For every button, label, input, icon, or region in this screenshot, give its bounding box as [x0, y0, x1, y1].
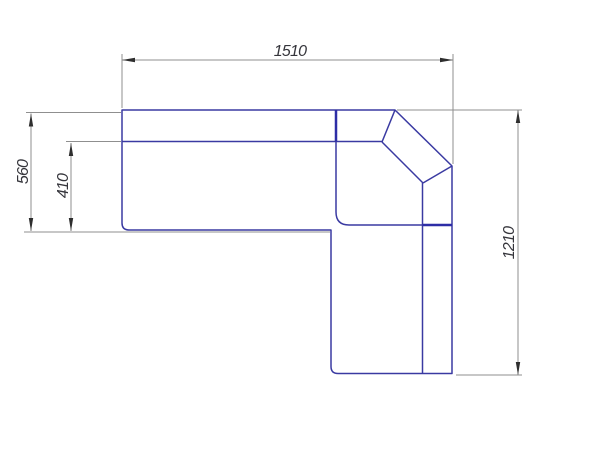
sofa-dimension-drawing: 15105604101210 [0, 0, 600, 450]
dimension-right-arm-length: 1210 [397, 110, 522, 375]
arrowhead-left-overall-width [122, 58, 135, 62]
dimension-overall-width: 1510 [122, 43, 453, 164]
dimension-annotations-group: 15105604101210 [15, 43, 522, 375]
arrowhead-right-overall-width [440, 58, 453, 62]
arrowhead-up-overall-depth [29, 114, 33, 127]
dimension-label-seat-depth: 410 [55, 173, 72, 198]
dimension-label-overall-width: 1510 [274, 43, 307, 60]
arrowhead-down-overall-depth [29, 218, 33, 231]
dimension-label-right-arm-length: 1210 [501, 226, 518, 259]
dimension-label-overall-depth: 560 [15, 159, 32, 184]
arrowhead-up-right-arm-length [516, 110, 520, 123]
corner-bevel-inner-left [382, 110, 395, 142]
sofa-outline-group [122, 110, 452, 374]
drawing-canvas: 15105604101210 [0, 0, 600, 450]
dimension-seat-depth: 410 [24, 142, 330, 233]
corner-backrest-bottom [382, 142, 423, 183]
arrowhead-up-seat-depth [69, 143, 73, 156]
corner-seat-boundary [336, 110, 452, 225]
arrowhead-down-seat-depth [69, 218, 73, 231]
corner-backrest-right [423, 166, 452, 183]
arrowhead-down-right-arm-length [516, 362, 520, 375]
sofa-outer-outline [122, 110, 452, 374]
dimension-overall-depth: 560 [15, 113, 121, 232]
